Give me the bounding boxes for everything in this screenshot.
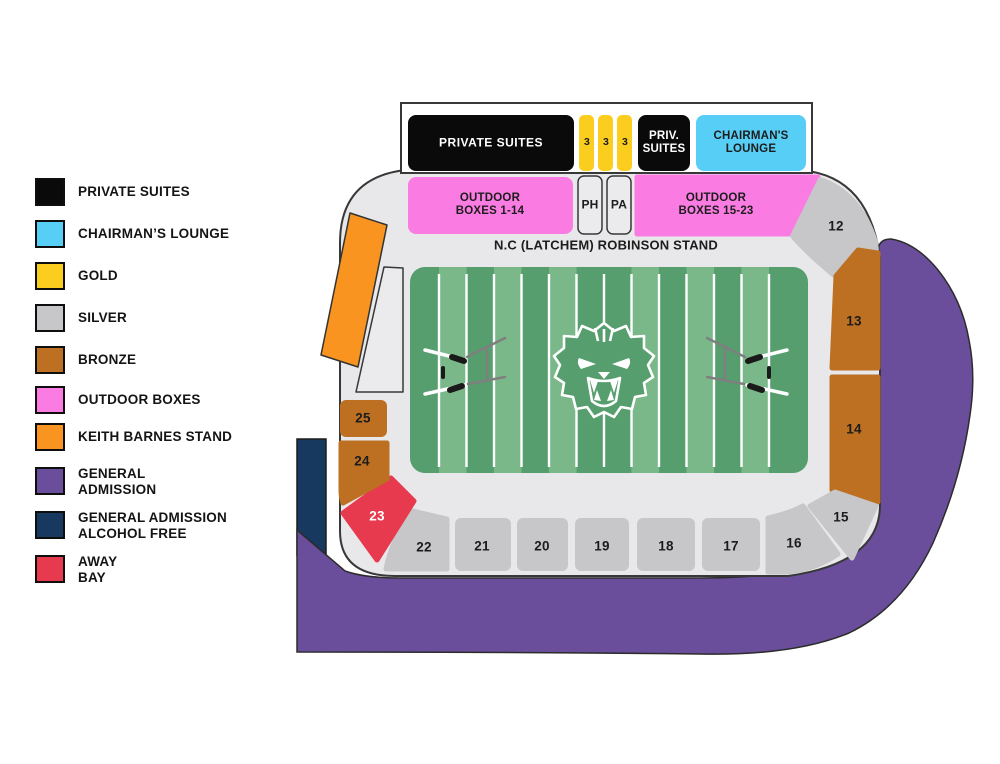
section-25[interactable]	[340, 400, 387, 437]
legend-label-away-bay: AWAY BAY	[78, 554, 117, 586]
section-outdoor-boxes-1-14[interactable]	[408, 177, 573, 234]
legend-swatch-bronze	[35, 346, 65, 374]
section-18[interactable]	[637, 518, 695, 571]
section-gold-1[interactable]	[579, 115, 594, 171]
legend-label-keith-barnes-stand: KEITH BARNES STAND	[78, 429, 232, 445]
legend-swatch-chairmans-lounge	[35, 220, 65, 248]
legend-swatch-keith-barnes-stand	[35, 423, 65, 451]
stadium-map-svg	[0, 0, 1000, 764]
section-chairmans-lounge[interactable]	[696, 115, 806, 171]
pa-box	[607, 176, 631, 234]
ph-box	[578, 176, 602, 234]
legend-label-gold: GOLD	[78, 268, 118, 284]
legend-swatch-silver	[35, 304, 65, 332]
section-outdoor-boxes-15-23[interactable]	[637, 177, 818, 234]
legend-label-outdoor-boxes: OUTDOOR BOXES	[78, 392, 201, 408]
section-20[interactable]	[517, 518, 568, 571]
legend-label-ga-alcohol-free: GENERAL ADMISSION ALCOHOL FREE	[78, 510, 227, 542]
legend-swatch-outdoor-boxes	[35, 386, 65, 414]
legend-label-general-admission: GENERAL ADMISSION	[78, 466, 156, 498]
legend-swatch-gold	[35, 262, 65, 290]
section-gold-2[interactable]	[598, 115, 613, 171]
legend-swatch-away-bay	[35, 555, 65, 583]
section-17[interactable]	[702, 518, 760, 571]
section-14[interactable]	[832, 377, 878, 502]
section-gold-3[interactable]	[617, 115, 632, 171]
section-19[interactable]	[575, 518, 629, 571]
section-private-suites[interactable]	[408, 115, 574, 171]
section-21[interactable]	[455, 518, 511, 571]
legend-label-chairmans-lounge: CHAIRMAN’S LOUNGE	[78, 226, 229, 242]
legend-swatch-ga-alcohol-free	[35, 511, 65, 539]
legend-label-silver: SILVER	[78, 310, 127, 326]
legend-label-private-suites: PRIVATE SUITES	[78, 184, 190, 200]
legend-swatch-general-admission	[35, 467, 65, 495]
stadium-seating-map: PRIVATE SUITES 3 3 3 PRIV. SUITES CHAIRM…	[0, 0, 1000, 764]
field	[410, 267, 808, 473]
legend-swatch-private-suites	[35, 178, 65, 206]
section-priv-suites[interactable]	[638, 115, 690, 171]
legend-label-bronze: BRONZE	[78, 352, 136, 368]
